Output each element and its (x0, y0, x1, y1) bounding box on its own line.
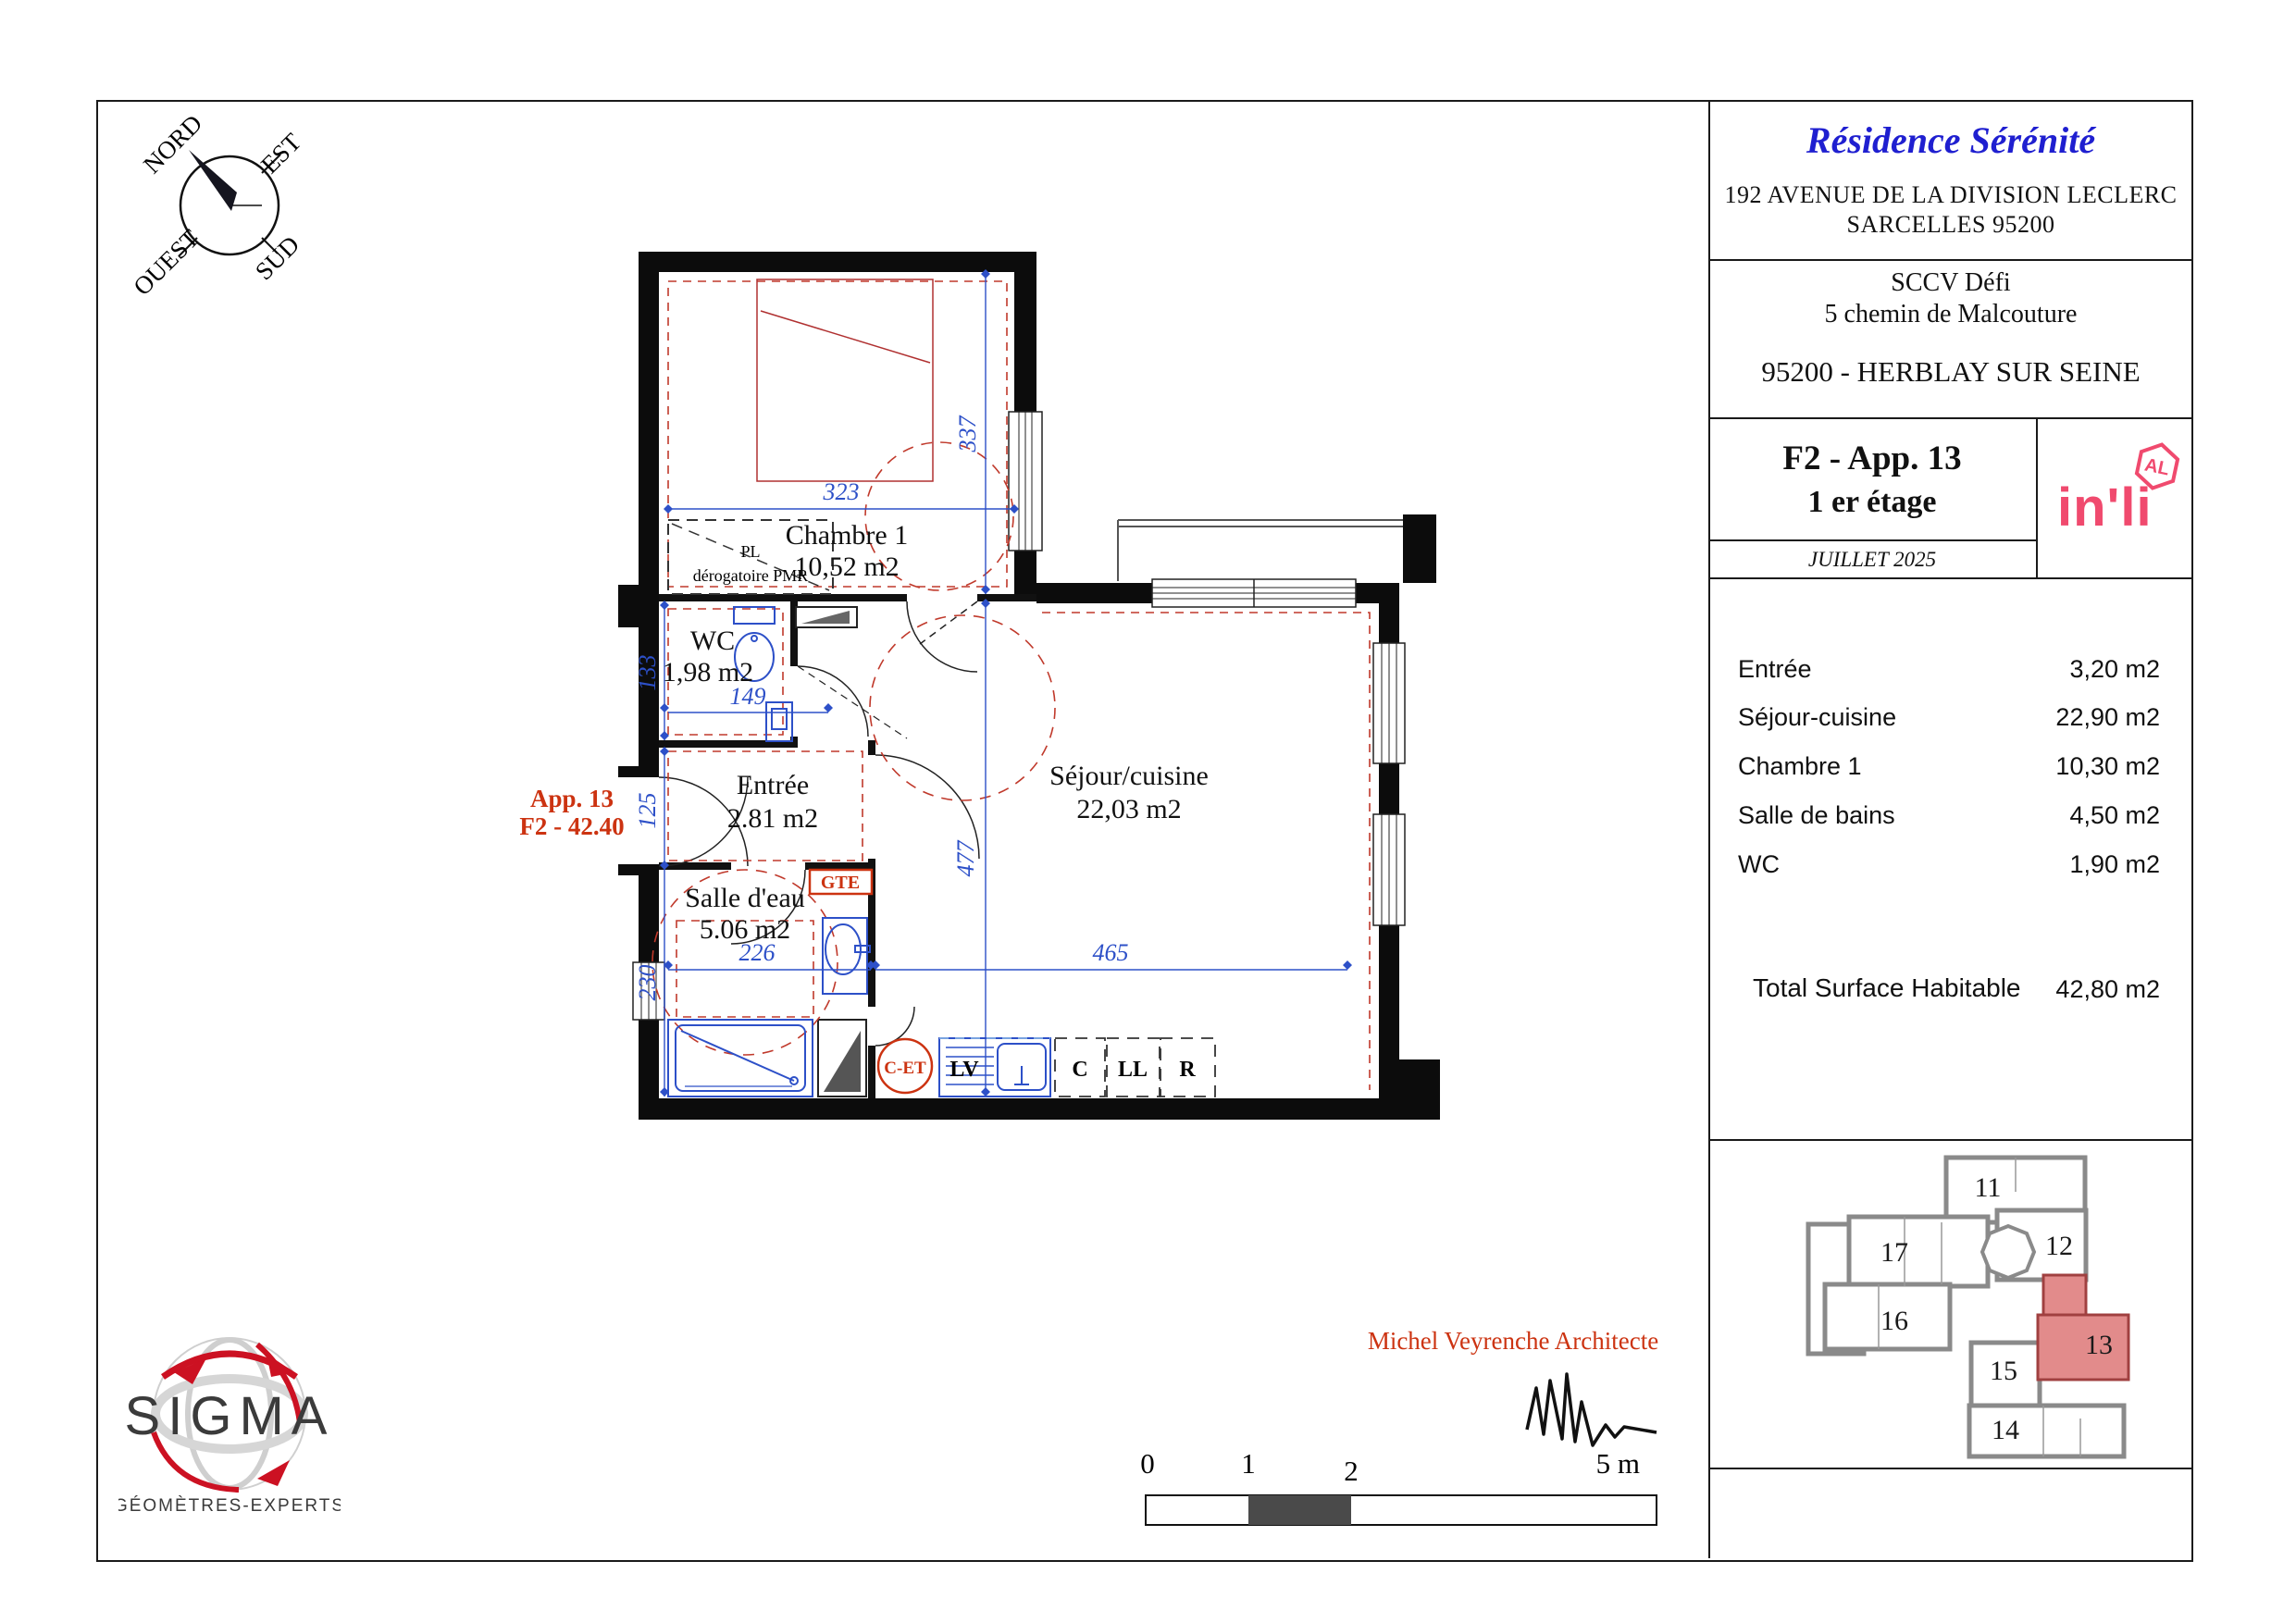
key-plan-number-14: 14 (1992, 1415, 2019, 1445)
developer-line-2: 5 chemin de Malcouture (1708, 300, 2193, 329)
title-block-line-3 (1708, 577, 2193, 579)
brand-cell-divider (2036, 417, 2038, 577)
floor-title: 1 er étage (1708, 485, 2036, 520)
brand-logo-text: in'li (2057, 477, 2153, 538)
compass-rose: NORD EST SUD OUEST (128, 102, 331, 305)
architect-signature-block: Michel Veyrenche Architecte (1347, 1314, 1680, 1462)
dim-sejour-width: 465 (1093, 939, 1129, 966)
title-block-line-2 (1708, 417, 2193, 419)
area-row-label: Séjour-cuisine (1738, 703, 1896, 732)
key-plan-number-13: 13 (2085, 1330, 2113, 1360)
c-label: C (1072, 1058, 1087, 1082)
plan-sheet-page: { "title_block": { "residence": "Résiden… (0, 0, 2296, 1623)
date-label: JUILLET 2025 (1708, 548, 2036, 572)
bed-icon (757, 279, 933, 481)
cet-label: C-ET (884, 1059, 926, 1078)
technical-shafts (796, 607, 866, 1096)
area-row-label: Salle de bains (1738, 801, 1895, 830)
area-row-label: Entrée (1738, 655, 1812, 684)
area-row-value: 4,50 m2 (1980, 801, 2160, 830)
neighbour-walls (1118, 520, 1430, 581)
brand-logo: in'li AL (2050, 431, 2189, 561)
title-block-line-5 (1708, 1468, 2193, 1469)
gte-label: GTE (821, 873, 860, 893)
apartment-ref-line-2: F2 - 42.40 (519, 812, 624, 840)
dim-chambre-height: 337 (954, 415, 981, 453)
signature-scribble (1527, 1374, 1657, 1445)
title-block-line-1 (1708, 259, 2193, 261)
room-chambre-area: 10,52 m2 (794, 551, 899, 582)
area-row-value: 1,90 m2 (1980, 850, 2160, 879)
address-line-1: 192 AVENUE DE LA DIVISION LECLERC (1708, 181, 2193, 209)
room-entree-name: Entrée (737, 770, 809, 800)
surveyor-logo: SIGMA GÉOMÈTRES-EXPERTS (118, 1321, 341, 1553)
room-entree-area: 2.81 m2 (727, 803, 818, 834)
area-row-value: 3,20 m2 (1980, 655, 2160, 684)
brand-badge-text: AL (2142, 454, 2171, 479)
washbasin-icon (823, 918, 870, 994)
dim-wc-height: 133 (634, 655, 661, 691)
scale-tick-2: 2 (1344, 1455, 1359, 1487)
surveyor-subtitle: GÉOMÈTRES-EXPERTS (118, 1496, 341, 1516)
dim-entree-height: 125 (634, 793, 661, 829)
architect-name: Michel Veyrenche Architecte (1368, 1327, 1658, 1355)
neighbour-wall-block (1403, 514, 1436, 583)
scale-tick-1: 1 (1241, 1447, 1256, 1480)
r-label: R (1179, 1058, 1196, 1082)
floor-plan: GTE C-ET LV C LL R 323 337 133 149 125 2… (518, 222, 1453, 1184)
room-wc-name: WC (690, 626, 735, 656)
room-chambre-name: Chambre 1 (786, 520, 908, 551)
key-plan-stair-core (1982, 1226, 2034, 1278)
scale-tick-5m: 5 m (1596, 1447, 1640, 1480)
compass-west-label: OUEST (128, 224, 205, 301)
address-line-2: SARCELLES 95200 (1708, 211, 2193, 239)
window-chambre-east (1009, 412, 1042, 551)
window-sejour-east-1 (1373, 643, 1405, 763)
room-sejour-area: 22,03 m2 (1076, 794, 1181, 824)
key-plan-number-12: 12 (2045, 1231, 2073, 1261)
key-plan: 11 12 13 14 15 16 17 (1710, 1141, 2193, 1466)
city-line: 95200 - HERBLAY SUR SEINE (1708, 355, 2193, 389)
total-area-value: 42,80 m2 (1980, 975, 2160, 1004)
dimension-lines (664, 274, 1347, 1096)
scale-bar: 0 1 2 5 m (1140, 1443, 1663, 1536)
scale-bar-filled-segment (1248, 1495, 1351, 1525)
key-plan-number-16: 16 (1880, 1306, 1908, 1336)
lv-label: LV (949, 1058, 979, 1082)
room-sejour-name: Séjour/cuisine (1049, 761, 1209, 791)
area-row-label: WC (1738, 850, 1780, 879)
key-plan-number-15: 15 (1990, 1356, 2017, 1386)
dim-chambre-width: 323 (823, 478, 860, 505)
room-salle-area: 5.06 m2 (700, 914, 790, 945)
window-sejour-north (1152, 579, 1356, 607)
developer-line-1: SCCV Défi (1708, 268, 2193, 298)
surveyor-name: SIGMA (125, 1386, 335, 1446)
residence-title: Résidence Sérénité (1708, 118, 2193, 162)
apartment-ref-line-1: App. 13 (530, 785, 614, 812)
room-wc-area: 1,98 m2 (663, 657, 753, 688)
closet-label-1: PL (740, 542, 760, 561)
area-row-label: Chambre 1 (1738, 752, 1862, 781)
title-block-subline (1708, 539, 2036, 541)
closet-label-2: dérogatoire PMR (693, 566, 808, 585)
key-plan-number-17: 17 (1880, 1237, 1908, 1268)
shower-icon (668, 1020, 813, 1096)
ll-label: LL (1118, 1058, 1148, 1082)
area-row-value: 10,30 m2 (1980, 752, 2160, 781)
area-row-value: 22,90 m2 (1980, 703, 2160, 732)
dim-sejour-height: 477 (952, 840, 979, 877)
room-salle-name: Salle d'eau (685, 883, 805, 913)
apartment-title: F2 - App. 13 (1708, 439, 2036, 478)
compass-south-label: SUD (250, 230, 304, 285)
dim-salle-height: 230 (634, 965, 661, 1001)
key-plan-unit-13-highlight (2038, 1275, 2128, 1380)
key-plan-number-11: 11 (1975, 1172, 2002, 1203)
window-sejour-east-2 (1373, 814, 1405, 925)
scale-tick-0: 0 (1140, 1447, 1155, 1480)
scale-bar-outline (1146, 1495, 1657, 1525)
